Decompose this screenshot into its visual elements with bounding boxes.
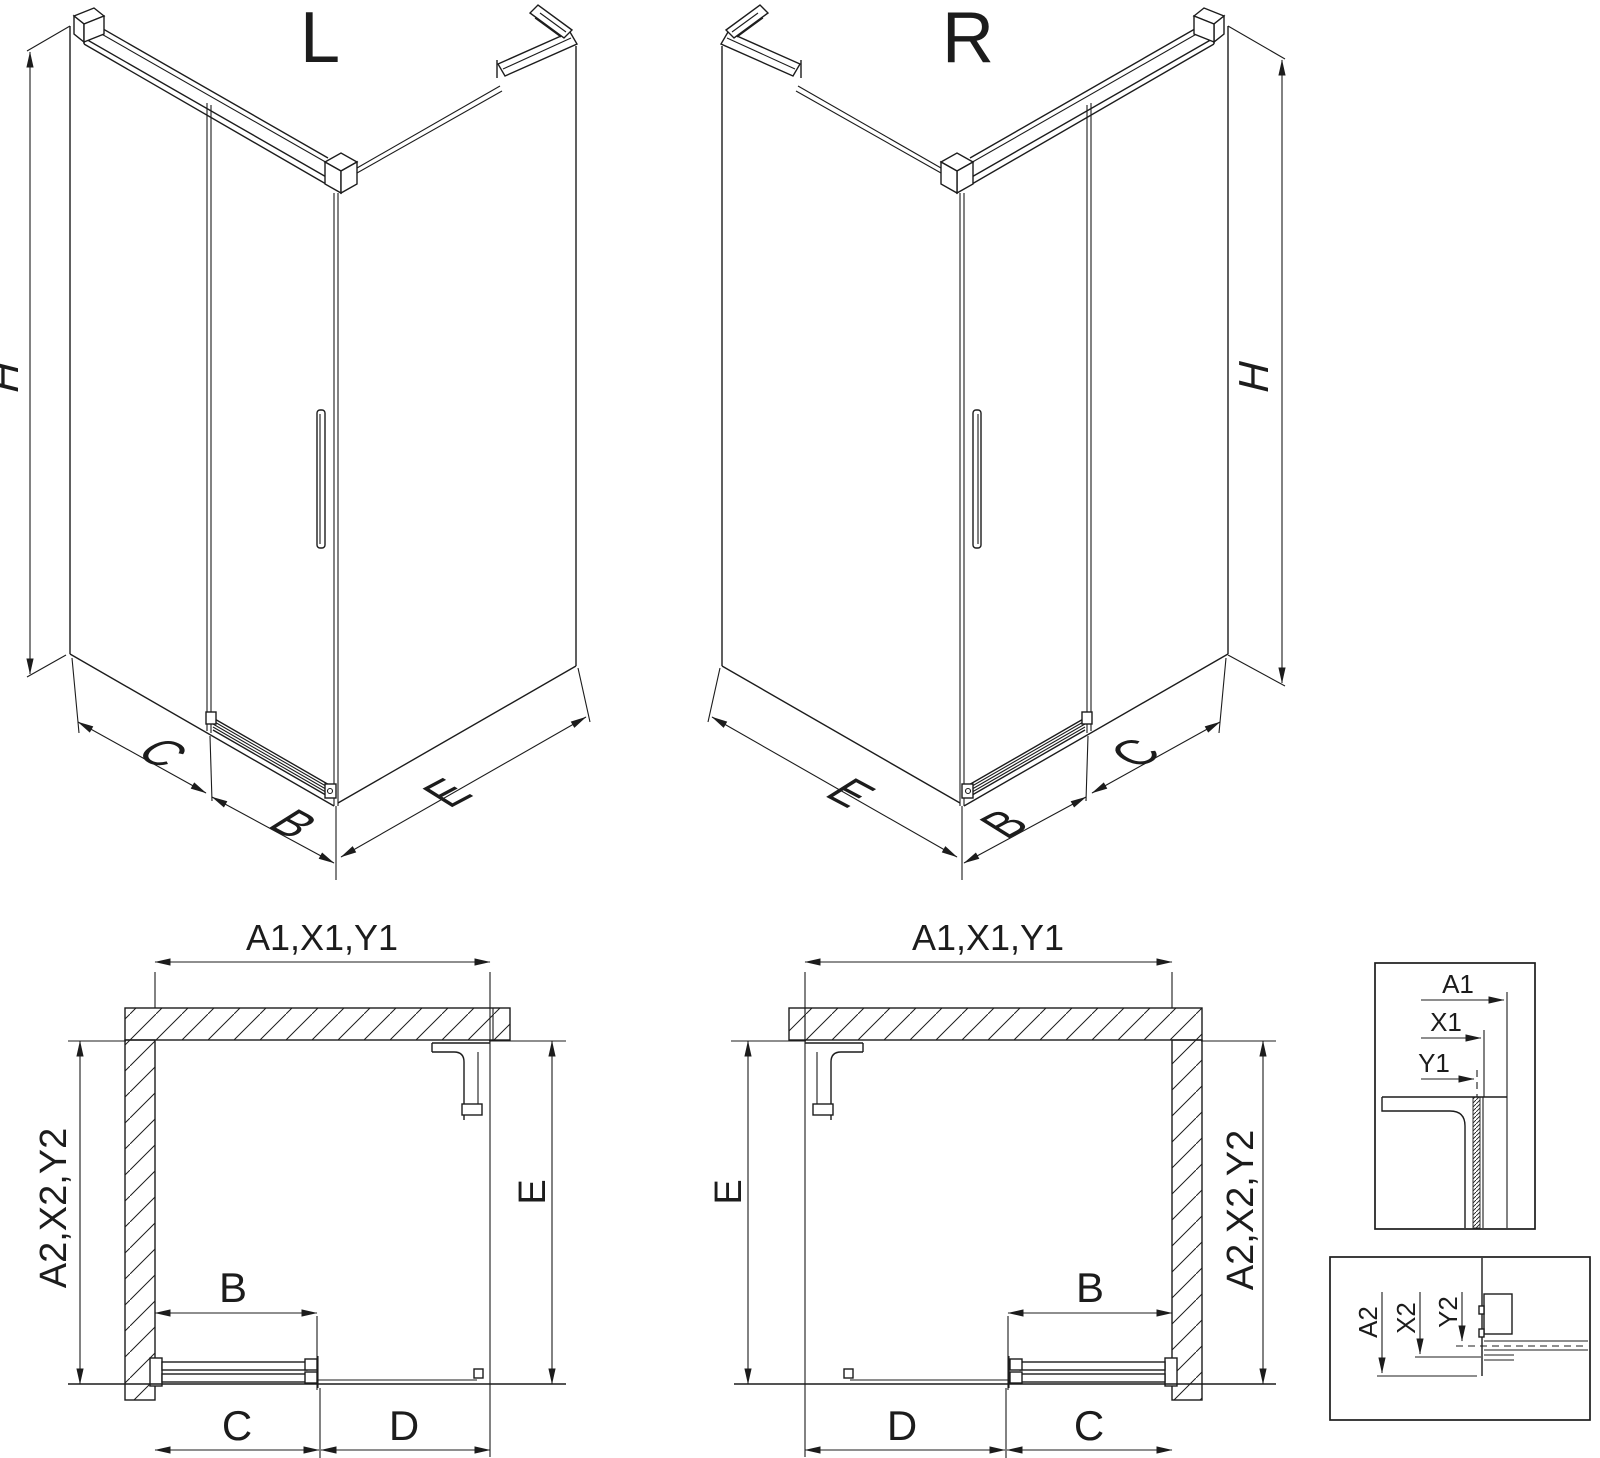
detail-label-X1: X1 — [1430, 1007, 1462, 1037]
dim-return-depth: E — [489, 1041, 566, 1384]
side-glass-panel — [964, 26, 1228, 806]
dim-door-width: B — [155, 1264, 317, 1390]
technical-drawing-sheet: L — [0, 0, 1600, 1458]
dim-label-D-plan-right: D — [887, 1402, 917, 1449]
dim-label-C-plan-left: C — [222, 1402, 252, 1449]
door-handle-icon — [973, 410, 981, 548]
return-glass-panel — [338, 46, 576, 803]
detail-view-bottom: A2 X2 Y2 — [1330, 1257, 1590, 1420]
detail-dims: A2 X2 Y2 — [1353, 1292, 1588, 1376]
dim-fixed-right: C — [1092, 658, 1226, 793]
wall-bracket-top-right — [497, 5, 577, 78]
dim-label-E-right: E — [813, 771, 887, 815]
detail-label-Y2: Y2 — [1433, 1296, 1463, 1328]
dim-label-D-plan-left: D — [389, 1402, 419, 1449]
bottom-track — [206, 712, 336, 798]
return-glass-panel — [722, 46, 960, 803]
dim-label-E-plan-left: E — [512, 1179, 554, 1204]
detail-label-Y1: Y1 — [1418, 1048, 1450, 1078]
door-divider-edge — [1087, 103, 1091, 733]
dim-label-H-right: H — [1231, 356, 1278, 398]
dim-bottom-segments: C D — [155, 1388, 490, 1458]
dim-return-left: E — [341, 668, 590, 857]
dim-label-B-right: B — [968, 802, 1042, 846]
corner-connector — [325, 153, 357, 880]
corner-wall-profile — [805, 1043, 863, 1120]
wall-hatching — [789, 1008, 1202, 1400]
dim-label-C-plan-right: C — [1074, 1402, 1104, 1449]
wall-profile-top-left — [74, 8, 104, 42]
dim-wall-depth: A2,X2,Y2 — [1201, 1041, 1276, 1384]
dim-label-E-left: E — [411, 771, 485, 815]
plan-view-right: A1,X1,Y1 A2,X2,Y2 E B — [708, 917, 1276, 1458]
wall-bracket-top-left — [721, 5, 801, 78]
dim-label-A2X2Y2-right: A2,X2,Y2 — [1220, 1130, 1262, 1291]
return-glass-top-edge — [357, 86, 502, 173]
shower-enclosure-diagram: L — [0, 0, 1600, 1458]
dim-door-width: B — [1008, 1264, 1172, 1390]
dim-label-A1X1Y1-left: A1,X1,Y1 — [246, 917, 398, 958]
door-divider-edge — [207, 103, 211, 733]
dim-height-right: H — [1228, 26, 1285, 686]
dim-label-A2X2Y2-left: A2,X2,Y2 — [33, 1128, 75, 1289]
dim-label-B-left: B — [256, 802, 330, 846]
bottom-track — [962, 712, 1092, 798]
variant-title-left: L — [300, 0, 340, 78]
door-handle-icon — [317, 410, 325, 548]
dim-label-E-plan-right: E — [708, 1179, 750, 1204]
dim-return-right: E — [708, 668, 957, 857]
side-glass-panel — [70, 26, 334, 806]
dim-label-B-plan-right: B — [1076, 1264, 1104, 1311]
detail-label-A2: A2 — [1353, 1306, 1383, 1338]
dim-label-B-plan-left: B — [219, 1264, 247, 1311]
dim-wall-depth: A2,X2,Y2 — [33, 1041, 126, 1384]
dim-label-A1X1Y1-right: A1,X1,Y1 — [912, 917, 1064, 958]
detail-dims: A1 X1 Y1 — [1418, 969, 1504, 1079]
detail-label-X2: X2 — [1391, 1302, 1421, 1334]
dim-label-H-left: H — [0, 356, 28, 398]
iso-view-left: L — [0, 0, 590, 880]
detail-frame — [1375, 963, 1535, 1229]
iso-view-right: R — [708, 0, 1285, 880]
wall-profile-top-right — [1194, 8, 1224, 42]
detail-view-top: A1 X1 Y1 — [1375, 963, 1535, 1229]
dim-label-C-left: C — [124, 731, 200, 776]
dim-return-depth: E — [708, 1041, 806, 1384]
track-section — [1479, 1258, 1588, 1376]
return-glass-top-edge — [796, 86, 941, 173]
corner-connector — [941, 153, 973, 880]
dim-fixed-left: C — [72, 658, 206, 793]
dim-height-left: H — [0, 26, 70, 677]
corner-wall-profile — [432, 1043, 490, 1120]
variant-title-right: R — [942, 0, 994, 78]
plan-view-left: A1,X1,Y1 A2,X2,Y2 E B — [33, 917, 566, 1458]
detail-label-A1: A1 — [1442, 969, 1474, 999]
dim-bottom-segments: D C — [805, 1388, 1172, 1458]
